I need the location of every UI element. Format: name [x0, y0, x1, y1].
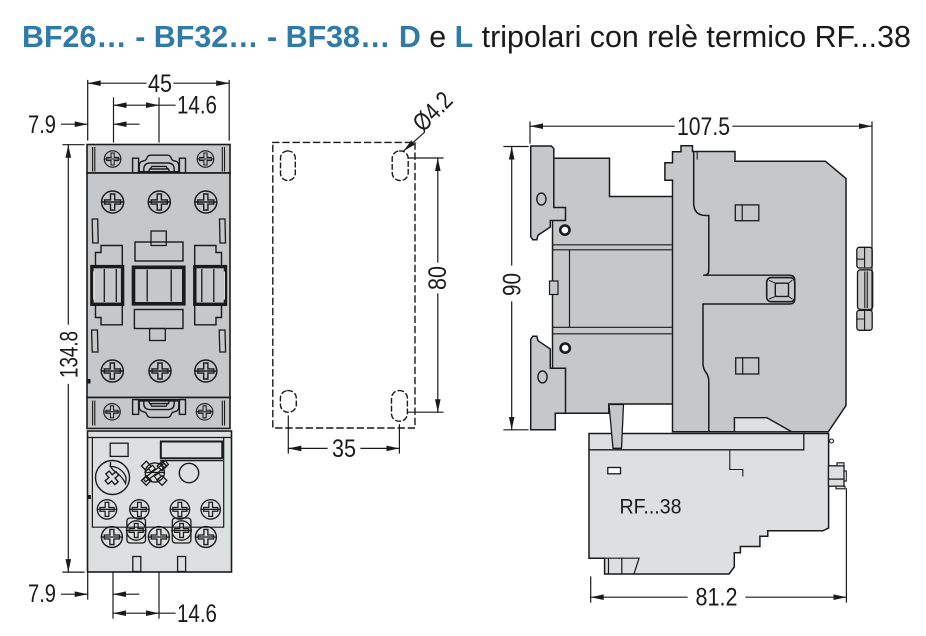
svg-text:80: 80 [424, 266, 452, 290]
svg-text:134.8: 134.8 [55, 331, 83, 378]
svg-text:14.6: 14.6 [177, 600, 217, 628]
svg-text:Ø4.2: Ø4.2 [407, 86, 458, 137]
svg-text:81.2: 81.2 [696, 584, 738, 612]
svg-text:7.9: 7.9 [28, 580, 56, 608]
svg-text:90: 90 [499, 273, 527, 296]
svg-text:35: 35 [332, 435, 356, 463]
svg-text:RF...38: RF...38 [620, 495, 682, 519]
svg-text:107.5: 107.5 [677, 113, 730, 141]
svg-text:14.6: 14.6 [177, 92, 217, 120]
svg-text:45: 45 [148, 70, 172, 98]
svg-text:7.9: 7.9 [28, 111, 56, 139]
